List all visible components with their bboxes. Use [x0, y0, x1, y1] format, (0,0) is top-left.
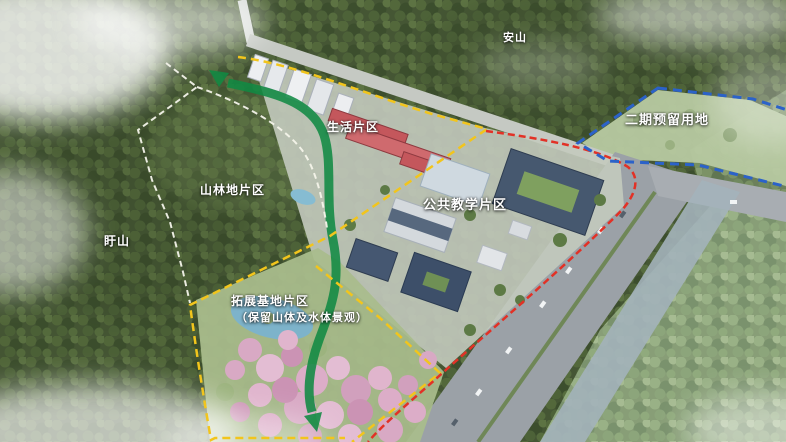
campus-masterplan-rendering: 安山 盱山 山林地片区 生活片区 公共教学片区 二期预留用地 拓展基地片区 （保…	[0, 0, 786, 442]
label-xushan-mountain: 盱山	[104, 234, 130, 249]
label-anshan-mountain: 安山	[503, 31, 527, 45]
aerial-scene	[0, 0, 786, 442]
label-teaching-zone: 公共教学片区	[423, 198, 507, 214]
label-phase2-zone: 二期预留用地	[625, 113, 709, 129]
label-living-zone: 生活片区	[327, 120, 379, 135]
label-forest-zone: 山林地片区	[200, 183, 265, 198]
label-expansion-zone: 拓展基地片区	[231, 294, 309, 309]
label-expansion-zone-note: （保留山体及水体景观）	[236, 311, 368, 325]
